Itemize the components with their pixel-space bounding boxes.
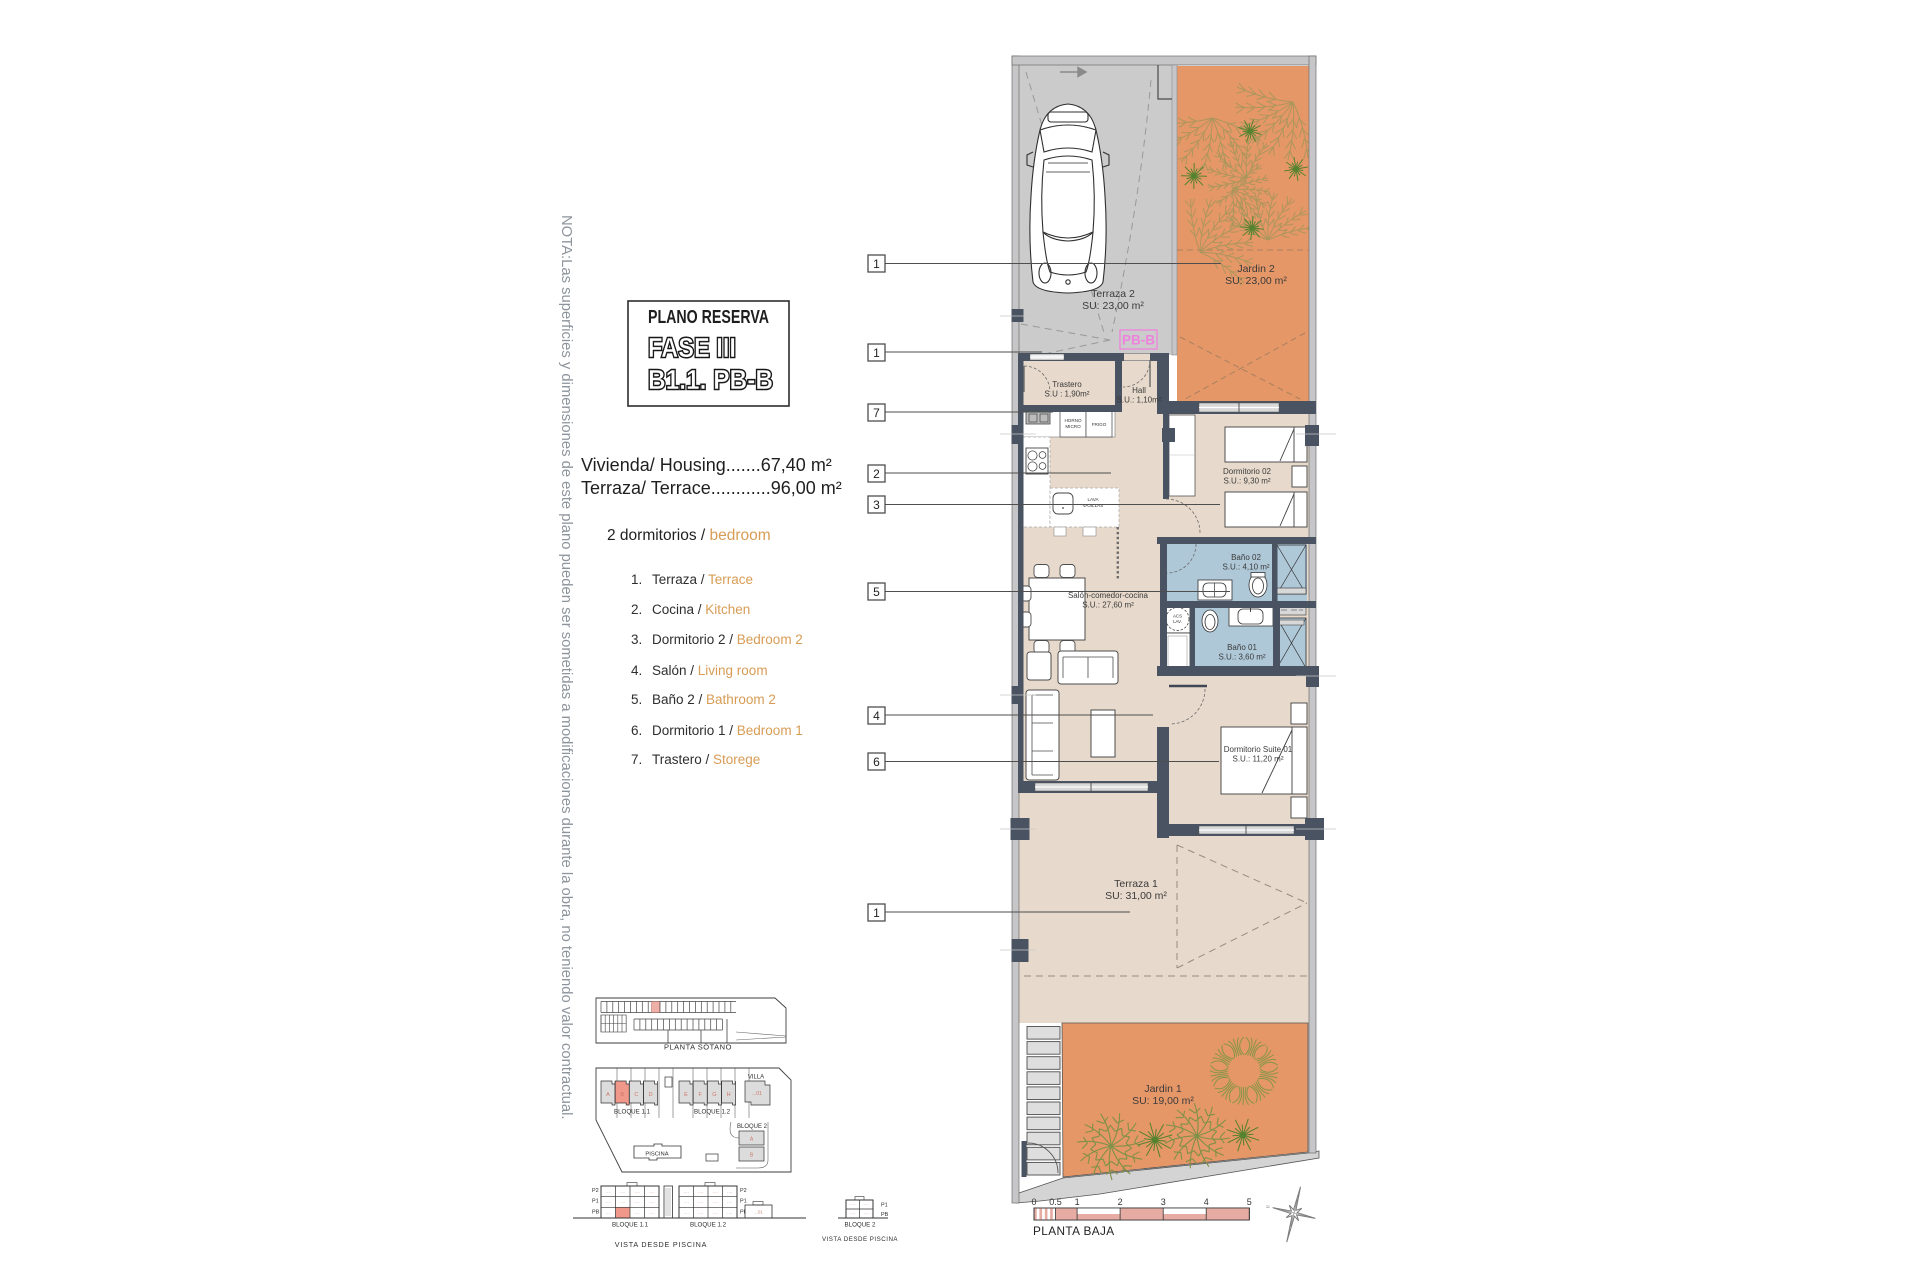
svg-text:BLOQUE 1.2: BLOQUE 1.2 [694,1109,731,1116]
svg-text:VISTA DESDE PISCINA: VISTA DESDE PISCINA [822,1236,898,1243]
svg-text:····: ···· [605,1200,611,1205]
svg-text:VILLA: VILLA [748,1075,764,1081]
svg-text:2: 2 [873,467,880,481]
svg-text:2 dormitorios / bedroom: 2 dormitorios / bedroom [607,527,771,544]
svg-text:5: 5 [1247,1197,1252,1207]
svg-text:SU: 19,00 m²: SU: 19,00 m² [1132,1095,1194,1107]
svg-text:Baño 02: Baño 02 [1231,553,1261,562]
svg-text:1: 1 [873,906,880,920]
svg-text:BLOQUE 2: BLOQUE 2 [845,1222,877,1229]
svg-text:H: H [727,1092,731,1098]
svg-text:Jardin 2: Jardin 2 [1237,263,1275,275]
svg-text:PISCINA: PISCINA [645,1152,668,1158]
svg-text:BLOQUE 2: BLOQUE 2 [737,1124,768,1130]
svg-text:7: 7 [873,406,880,420]
svg-text:0: 0 [1031,1197,1036,1207]
svg-text:6.: 6. [631,723,642,738]
svg-text:····: ···· [634,1200,640,1205]
svg-text:····: ···· [863,1202,869,1207]
svg-text:Dormitorio Suite 01: Dormitorio Suite 01 [1224,745,1293,754]
svg-text:1.: 1. [631,572,642,587]
svg-text:····: ···· [727,1189,733,1194]
svg-text:2.: 2. [631,602,642,617]
svg-text:BLOQUE 1.1: BLOQUE 1.1 [614,1109,651,1116]
svg-text:Terraza / Terrace: Terraza / Terrace [652,572,753,587]
svg-text:3: 3 [1161,1197,1166,1207]
svg-text:SU: 23,00 m²: SU: 23,00 m² [1082,300,1144,312]
svg-text:Trastero / Storege: Trastero / Storege [652,752,760,767]
svg-text:1: 1 [873,257,880,271]
svg-text:FASE III: FASE III [648,332,736,363]
svg-text:····: ···· [649,1200,655,1205]
svg-text:Baño 01: Baño 01 [1227,643,1257,652]
svg-text:P1: P1 [740,1199,747,1205]
svg-text:P1: P1 [881,1203,888,1209]
svg-text:LAV.: LAV. [1173,619,1182,624]
svg-text:Terraza/ Terrace............96: Terraza/ Terrace............96,00 m² [581,478,842,498]
svg-text:...01: ...01 [752,1091,762,1097]
svg-text:Vivienda/ Housing.......67,40: Vivienda/ Housing.......67,40 m² [581,455,832,475]
svg-text:4: 4 [1204,1197,1209,1207]
svg-text:····: ···· [712,1200,718,1205]
svg-text:BLOQUE 1.2: BLOQUE 1.2 [690,1222,727,1229]
svg-text:PB: PB [881,1212,889,1218]
svg-text:····: ···· [698,1200,704,1205]
svg-text:····: ···· [727,1200,733,1205]
svg-text:BLOQUE 1.1: BLOQUE 1.1 [612,1222,649,1229]
svg-text:SU: 23,00 m²: SU: 23,00 m² [1225,275,1287,287]
svg-text:····: ···· [850,1211,856,1216]
svg-text:····: ···· [620,1211,626,1216]
svg-text:PLANO RESERVA: PLANO RESERVA [648,307,769,327]
svg-text:PB-B: PB-B [1122,333,1155,348]
svg-text:MICRO: MICRO [1065,424,1081,429]
svg-text:S.U.: 4,10 m²: S.U.: 4,10 m² [1222,563,1269,572]
svg-text:G: G [712,1092,716,1098]
svg-text:····: ···· [712,1211,718,1216]
svg-text:····: ···· [605,1189,611,1194]
svg-text:Jardin 1: Jardin 1 [1144,1083,1182,1095]
svg-text:Dormitorio 2 / Bedroom 2: Dormitorio 2 / Bedroom 2 [652,632,803,647]
svg-text:····: ···· [634,1189,640,1194]
svg-text:P2: P2 [592,1188,599,1194]
svg-text:NOTA:Las superficies y dimensi: NOTA:Las superficies y dimensiones de es… [558,215,574,1120]
svg-text:P1: P1 [592,1199,599,1205]
svg-text:6: 6 [873,755,880,769]
svg-text:VAJILLAS: VAJILLAS [1083,503,1104,508]
svg-text:B: B [620,1092,624,1098]
svg-text:S.U : 1,90m²: S.U : 1,90m² [1045,390,1090,399]
svg-text:S.U.: 11,20 m²: S.U.: 11,20 m² [1233,755,1284,764]
svg-text:Baño 2 / Bathroom 2: Baño 2 / Bathroom 2 [652,692,776,707]
svg-text:ACS: ACS [1173,614,1182,619]
svg-text:2: 2 [1118,1197,1123,1207]
svg-text:····: ···· [620,1200,626,1205]
svg-text:≈: ≈ [1266,1204,1270,1211]
svg-text:VISTA DESDE PISCINA: VISTA DESDE PISCINA [615,1240,708,1249]
svg-text:1: 1 [873,346,880,360]
svg-text:3.: 3. [631,632,642,647]
svg-text:S.U.: 3,60 m²: S.U.: 3,60 m² [1218,653,1265,662]
svg-text:····: ···· [649,1211,655,1216]
svg-text:Terraza 1: Terraza 1 [1114,878,1158,890]
svg-text:····: ···· [683,1211,689,1216]
svg-text:S.U.: 9,30 m²: S.U.: 9,30 m² [1223,477,1270,486]
svg-text:5.: 5. [631,692,642,707]
svg-text:····: ···· [698,1211,704,1216]
svg-text:PLANTA SÓTANO: PLANTA SÓTANO [664,1043,732,1052]
svg-text:HORNO: HORNO [1064,418,1082,423]
svg-text:Dormitorio 1 / Bedroom 1: Dormitorio 1 / Bedroom 1 [652,723,803,738]
svg-text:····: ···· [863,1211,869,1216]
svg-text:····: ···· [727,1211,733,1216]
svg-text:4.: 4. [631,663,642,678]
svg-text:C: C [634,1092,638,1098]
svg-text:PB: PB [592,1209,600,1215]
svg-text:5: 5 [873,585,880,599]
svg-text:...01: ...01 [754,1210,763,1215]
svg-text:A: A [606,1092,610,1098]
svg-text:····: ···· [850,1202,856,1207]
svg-text:3: 3 [873,498,880,512]
svg-text:····: ···· [634,1211,640,1216]
svg-text:····: ···· [683,1189,689,1194]
svg-text:LAVA: LAVA [1087,497,1099,502]
svg-text:Hall: Hall [1132,386,1146,395]
svg-text:····: ···· [605,1211,611,1216]
svg-text:····: ···· [683,1200,689,1205]
svg-text:PLANTA BAJA: PLANTA BAJA [1033,1224,1115,1238]
svg-text:7.: 7. [631,752,642,767]
svg-text:D: D [649,1092,653,1098]
svg-text:Salón-comedor-cocina: Salón-comedor-cocina [1068,591,1149,600]
svg-text:····: ···· [649,1189,655,1194]
svg-text:····: ···· [620,1189,626,1194]
svg-text:1: 1 [1075,1197,1080,1207]
svg-text:····: ···· [698,1189,704,1194]
svg-text:4: 4 [873,709,880,723]
svg-text:Dormitorio 02: Dormitorio 02 [1223,467,1272,476]
svg-text:Salón / Living room: Salón / Living room [652,663,768,678]
svg-text:Trastero: Trastero [1052,380,1082,389]
svg-text:P2: P2 [740,1188,747,1194]
svg-text:Cocina / Kitchen: Cocina / Kitchen [652,602,750,617]
svg-text:B1.1. PB-B: B1.1. PB-B [648,364,773,395]
svg-text:S.U.: 1,10m²: S.U.: 1,10m² [1117,396,1162,405]
svg-text:····: ···· [712,1189,718,1194]
svg-text:E: E [684,1092,688,1098]
svg-text:SU: 31,00 m²: SU: 31,00 m² [1105,890,1167,902]
svg-text:Terraza 2: Terraza 2 [1091,288,1135,300]
svg-text:0.5: 0.5 [1049,1197,1062,1207]
svg-text:S.U.: 27,60 m²: S.U.: 27,60 m² [1082,601,1134,610]
svg-text:FRIGO: FRIGO [1092,422,1107,427]
